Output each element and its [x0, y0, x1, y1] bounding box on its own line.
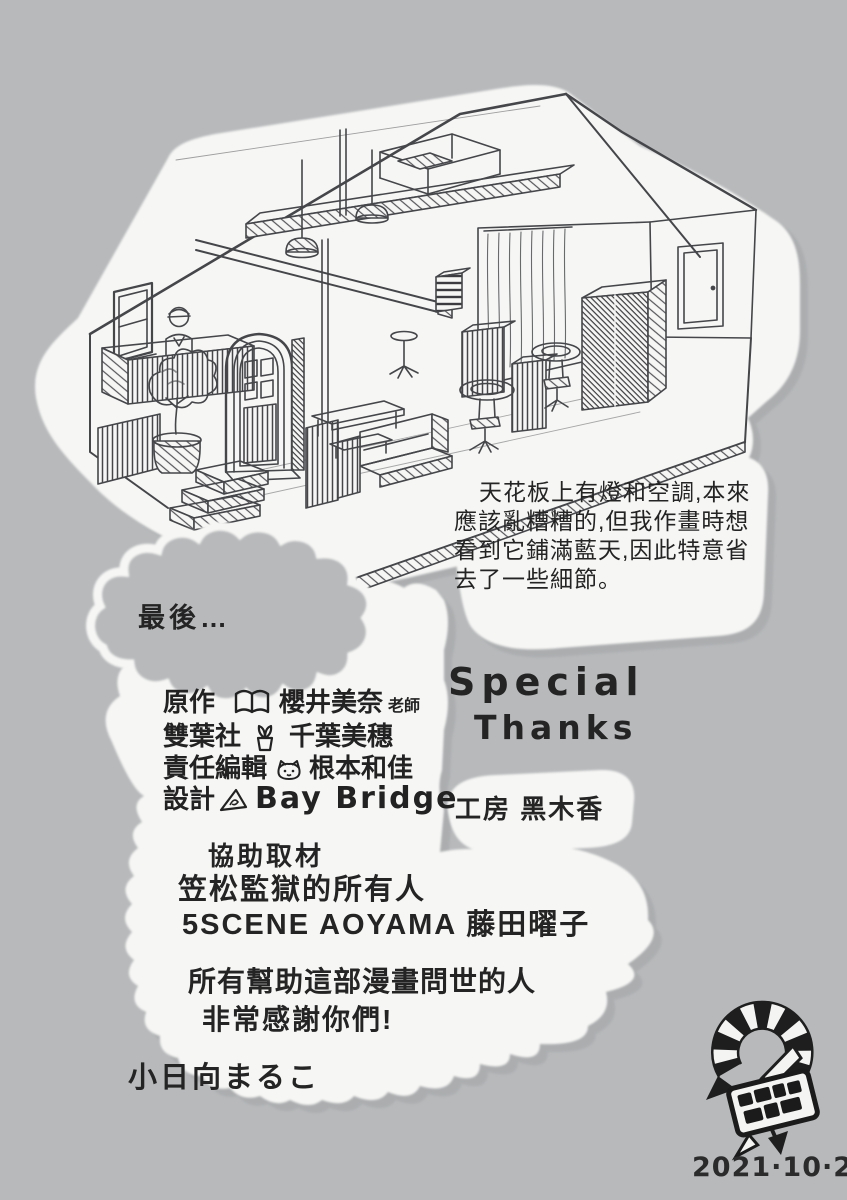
- triangle-logo-icon: [219, 786, 249, 814]
- scanlation-group-logo: [706, 1002, 823, 1157]
- author-note: 天花板上有燈和空調,本來 應該亂糟糟的,但我作畫時想 看到它鋪滿藍天,因此特意省…: [454, 478, 776, 594]
- cooperation-line: 5SCENE AOYAMA 藤田曜子: [182, 901, 590, 943]
- manga-afterword-page: 天花板上有燈和空調,本來 應該亂糟糟的,但我作畫時想 看到它鋪滿藍天,因此特意省…: [0, 0, 847, 1200]
- gratitude-line: 非常感謝你們!: [202, 998, 393, 1038]
- note-line: 看到它鋪滿藍天,因此特意省: [454, 536, 776, 565]
- logo-signboard: [720, 1070, 824, 1157]
- lastly-cloud-label: 最後…: [138, 596, 231, 635]
- special-thanks: Special Thanks: [448, 660, 645, 747]
- credit-role: 設計: [163, 779, 215, 816]
- credit-honorific: 老師: [388, 692, 420, 716]
- note-line: 應該亂糟糟的,但我作畫時想: [454, 507, 776, 536]
- note-line: 去了一些細節。: [454, 565, 776, 594]
- background-art: [0, 0, 847, 1200]
- author-signature: 小日向まるこ: [128, 1054, 320, 1096]
- credit-name: 櫻井美奈: [279, 682, 383, 719]
- credit-row-original-author: 原作 櫻井美奈 老師: [163, 682, 420, 719]
- special-thanks-line: Thanks: [474, 708, 645, 747]
- special-thanks-line: Special: [448, 660, 645, 704]
- book-icon: [233, 687, 271, 717]
- release-date: 2021·10·24: [692, 1152, 847, 1183]
- credit-role: 原作: [163, 682, 215, 719]
- credit-name: Bay Bridge: [255, 781, 458, 816]
- gratitude-line: 所有幫助這部漫畫問世的人: [188, 960, 536, 1000]
- note-line: 天花板上有燈和空調,本來: [454, 478, 776, 507]
- credit-row-design: 設計 Bay Bridge: [163, 779, 458, 816]
- studio-credit: 工房 黑木香: [455, 789, 604, 826]
